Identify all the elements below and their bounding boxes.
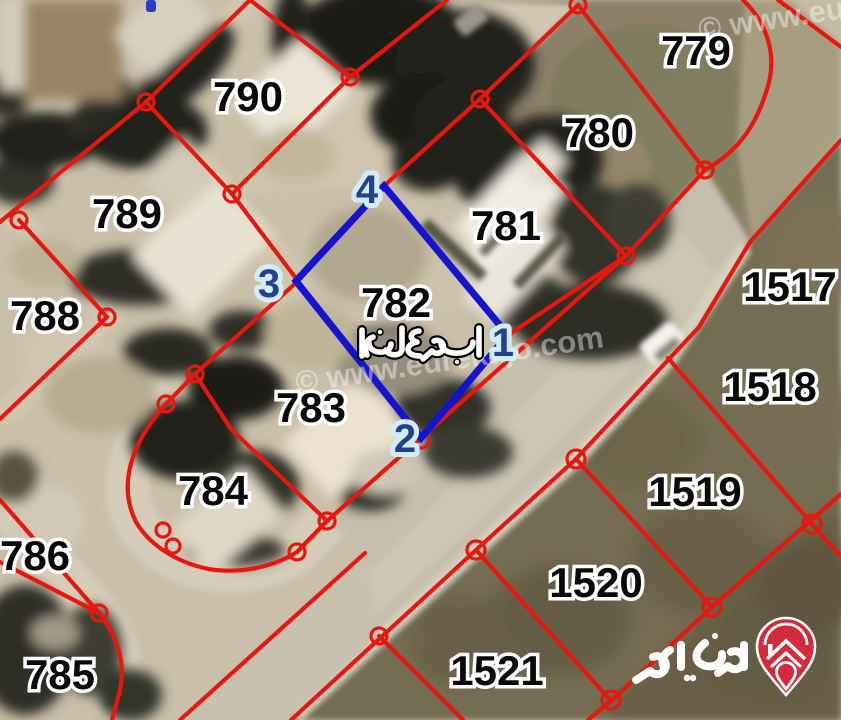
svg-text:789: 789: [92, 190, 162, 237]
svg-text:785: 785: [25, 651, 95, 698]
svg-text:788: 788: [10, 292, 80, 339]
svg-text:3: 3: [258, 262, 280, 306]
svg-text:1520: 1520: [549, 559, 642, 606]
svg-text:783: 783: [276, 384, 346, 431]
svg-text:4: 4: [356, 168, 379, 212]
svg-text:784: 784: [178, 467, 249, 514]
svg-text:790: 790: [213, 73, 283, 120]
svg-text:779: 779: [661, 27, 731, 74]
svg-text:782: 782: [361, 279, 431, 326]
svg-text:781: 781: [471, 202, 541, 249]
svg-text:1519: 1519: [648, 468, 741, 515]
svg-text:1: 1: [492, 321, 514, 365]
svg-text:780: 780: [564, 109, 634, 156]
svg-text:1521: 1521: [450, 647, 543, 694]
svg-text:786: 786: [0, 532, 70, 579]
svg-text:1517: 1517: [743, 263, 836, 310]
svg-text:2: 2: [394, 417, 416, 461]
svg-text:1518: 1518: [723, 363, 816, 410]
